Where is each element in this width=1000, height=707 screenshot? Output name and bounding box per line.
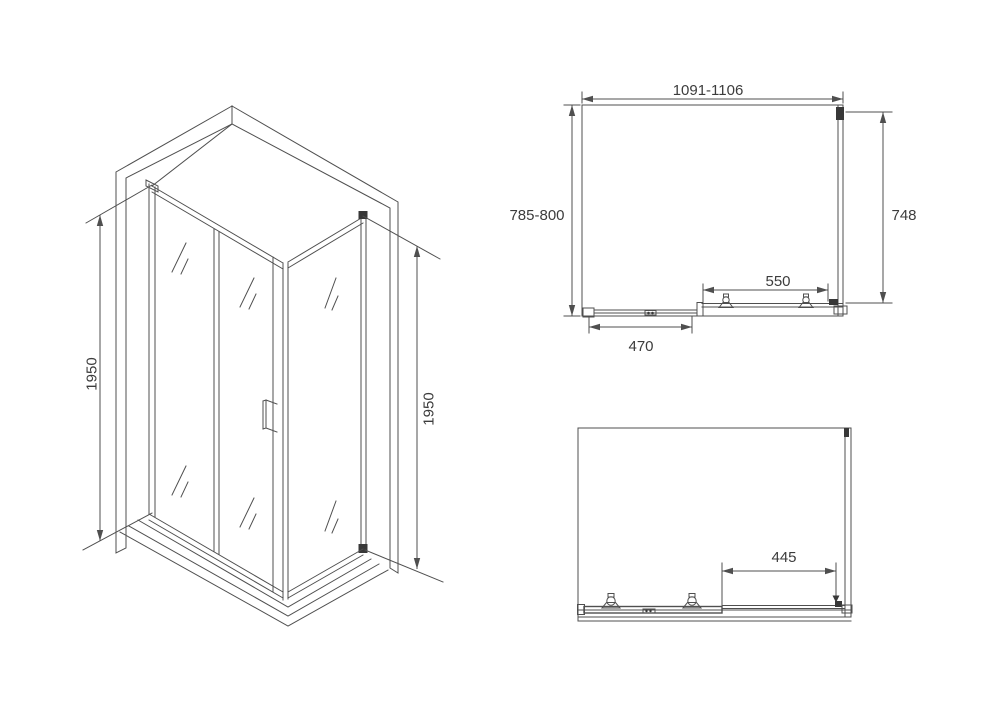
glass-reflection-marks xyxy=(172,243,338,533)
plan-door-track xyxy=(583,294,847,317)
dimension-height-left: 1950 xyxy=(83,185,152,550)
reflection-left-lower xyxy=(172,466,188,497)
tray-rim-middle xyxy=(129,526,379,616)
dimension-height-right: 1950 xyxy=(363,216,443,582)
dim-label-height-right: 1950 xyxy=(420,392,437,425)
door-divider-profile xyxy=(214,229,219,554)
wall-junction-edge xyxy=(152,124,232,186)
plan-outline xyxy=(582,105,843,316)
tray-edge-line xyxy=(578,617,851,621)
dimension-width: 1091-1106 xyxy=(582,82,843,103)
reflection-side-upper xyxy=(325,278,338,310)
open-door-assembly xyxy=(578,594,853,615)
dim-label-sliding-door: 550 xyxy=(765,273,790,290)
connector-dot xyxy=(645,610,647,612)
reflection-middle-upper xyxy=(240,278,256,309)
left-frame-profile xyxy=(149,184,155,517)
extension-lines xyxy=(846,112,892,303)
connector-dot xyxy=(649,610,651,612)
dimension-side-depth: 748 xyxy=(846,112,917,303)
door-handle xyxy=(263,400,277,432)
dimension-fixed-panel: 470 xyxy=(589,317,692,355)
dim-label-side-depth: 748 xyxy=(891,207,916,224)
dim-label-opening: 445 xyxy=(771,549,796,566)
roller-right xyxy=(799,294,813,308)
dimension-opening: 445 xyxy=(722,549,840,606)
reflection-left-upper xyxy=(172,243,188,274)
door-handle-shape xyxy=(263,400,277,432)
bottom-plan-view: 445 xyxy=(578,428,853,621)
dim-label-width-range: 1091-1106 xyxy=(673,82,744,99)
extension-lines xyxy=(722,563,836,606)
shower-enclosure-drawing: 1950 1950 xyxy=(0,0,1000,707)
side-panel-edge xyxy=(361,217,366,552)
front-top-rail xyxy=(152,186,283,269)
divider-post xyxy=(697,303,703,317)
right-wall xyxy=(232,106,398,573)
side-top-rail xyxy=(288,217,363,268)
technical-drawing-page: 1950 1950 xyxy=(0,0,1000,707)
dim-label-depth-range: 785-800 xyxy=(509,207,564,224)
rail-end-bracket xyxy=(829,299,838,305)
front-corner-post xyxy=(273,257,288,600)
roller-left xyxy=(719,294,733,308)
left-wall xyxy=(116,106,232,553)
roller-wheel xyxy=(607,597,615,605)
connector-dot xyxy=(651,312,654,315)
shower-tray xyxy=(120,520,388,626)
isometric-view: 1950 1950 xyxy=(83,106,443,626)
wall-profile-top-right xyxy=(836,107,844,120)
plan-outline xyxy=(578,428,851,617)
dimension-depth: 785-800 xyxy=(509,105,580,316)
reflection-side-lower xyxy=(325,501,338,533)
top-plan-view: 1091-1106 785-800 748 550 470 xyxy=(509,82,916,355)
dim-label-fixed-panel: 470 xyxy=(628,338,653,355)
connector-dot xyxy=(647,312,650,315)
wall-profile-top-right xyxy=(844,428,849,437)
tray-rim-outer xyxy=(138,520,371,607)
dim-label-height-left: 1950 xyxy=(83,357,100,390)
sliding-rail xyxy=(702,304,843,308)
empty-rail xyxy=(722,606,845,609)
reflection-middle-lower xyxy=(240,498,256,529)
back-walls xyxy=(116,106,398,573)
tray-rim-lower xyxy=(120,532,388,626)
roller-wheel xyxy=(688,597,696,605)
extension-lines xyxy=(589,317,692,333)
